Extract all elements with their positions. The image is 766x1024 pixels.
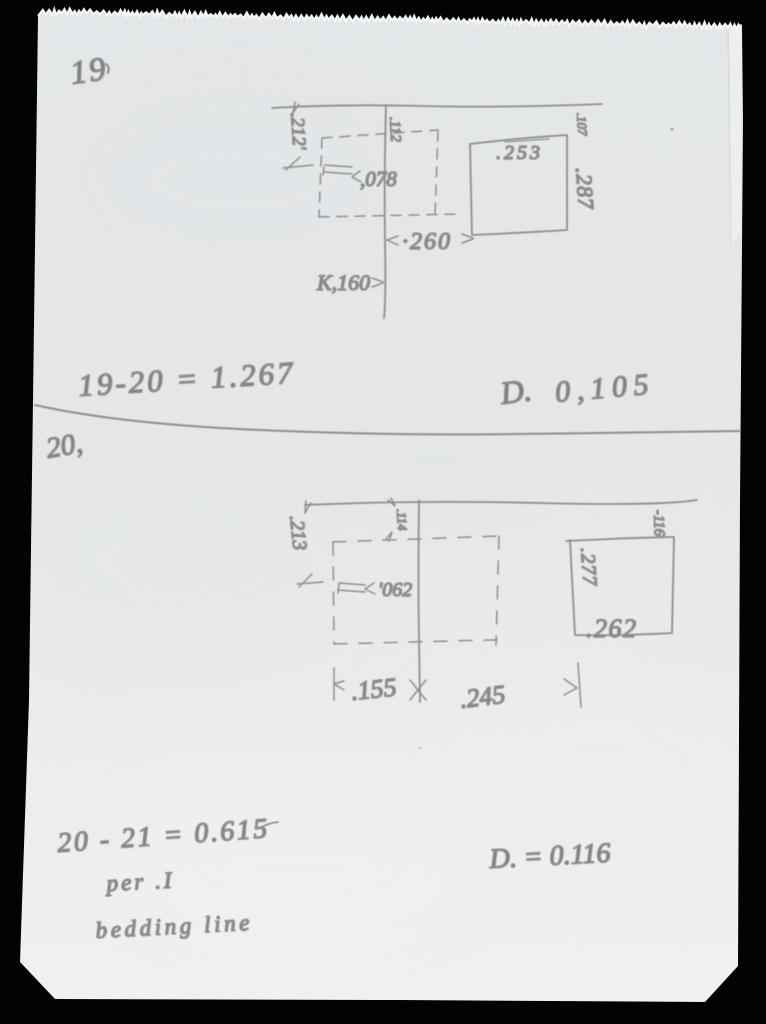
svg-text:20,: 20, [44,427,85,465]
svg-text:D. = 0.116: D. = 0.116 [488,838,612,875]
svg-text:19: 19 [68,51,110,92]
svg-text:D.: D. [497,371,533,411]
svg-text:.277: .277 [576,547,601,587]
svg-text:'062: '062 [378,579,412,601]
svg-text:·260: ·260 [402,229,452,255]
svg-text:.287: .287 [571,167,599,211]
svg-text:.253: .253 [496,142,543,164]
svg-text:.107: .107 [574,112,590,136]
svg-text:per .I: per .I [104,867,175,896]
svg-text:,078: ,078 [360,167,397,191]
svg-text:K,160: K,160 [316,270,370,295]
svg-text:.213: .213 [285,514,311,551]
svg-text:.262: .262 [586,614,638,643]
svg-text:.212': .212' [286,112,310,152]
svg-text:-116: -116 [650,510,667,537]
svg-text:.114: .114 [394,508,410,531]
svg-text:.155: .155 [350,672,398,706]
svg-text:.112: .112 [386,116,403,142]
svg-text:.245: .245 [458,680,507,714]
